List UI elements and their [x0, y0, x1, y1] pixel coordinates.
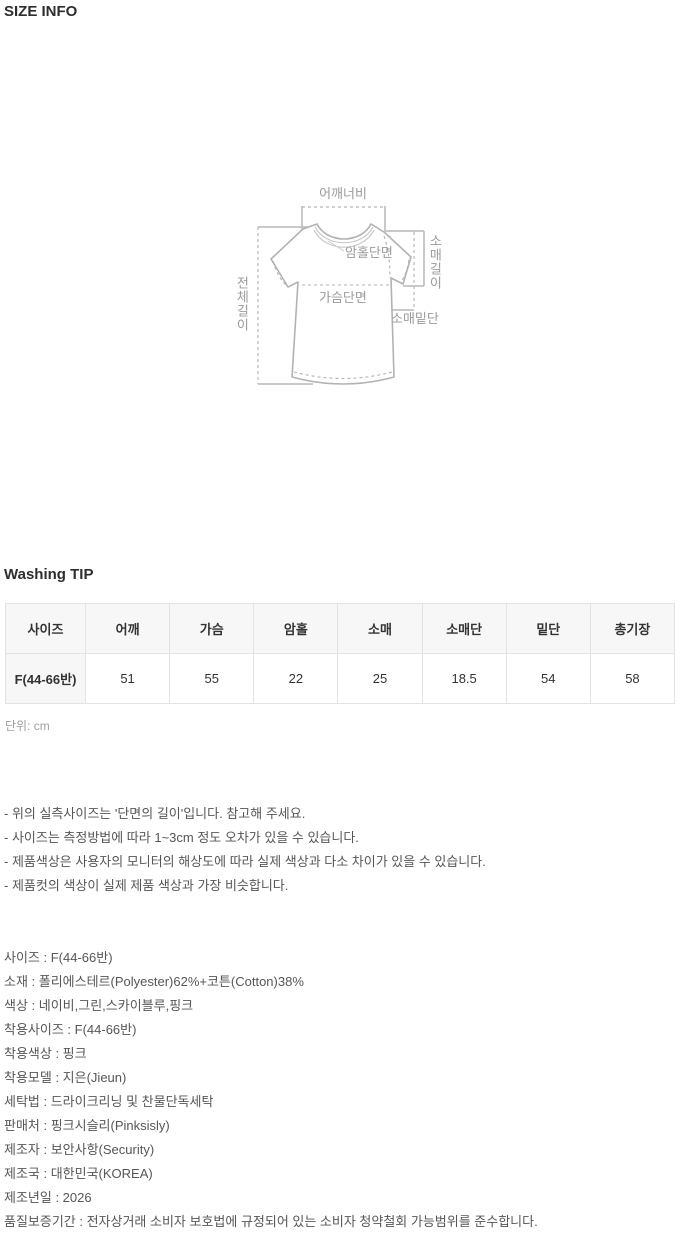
unit-label: 단위: cm [5, 717, 50, 734]
detail-line-washing: 세탁법 : 드라이크리닝 및 찬물단독세탁 [4, 1090, 538, 1114]
detail-line-warranty: 품질보증기간 : 전자상거래 소비자 보호법에 규정되어 있는 소비자 청약철회… [4, 1210, 538, 1234]
measurement-notes: - 위의 실측사이즈는 '단면의 길이'입니다. 참고해 주세요. - 사이즈는… [4, 802, 486, 898]
size-cell-shoulder: 51 [86, 654, 170, 704]
size-table-header-shoulder: 어깨 [86, 604, 170, 654]
note-line: - 제품색상은 사용자의 모니터의 해상도에 따라 실제 색상과 다소 차이가 … [4, 850, 486, 874]
sleeve-length-label: 소매길이 [427, 234, 441, 290]
detail-line-colors: 색상 : 네이비,그린,스카이블루,핑크 [4, 994, 538, 1018]
product-details: 사이즈 : F(44-66반) 소재 : 폴리에스테르(Polyester)62… [4, 946, 538, 1234]
size-cell-hem: 54 [506, 654, 590, 704]
detail-line-model-color: 착용색상 : 핑크 [4, 1042, 538, 1066]
detail-line-model-size: 착용사이즈 : F(44-66반) [4, 1018, 538, 1042]
note-line: - 위의 실측사이즈는 '단면의 길이'입니다. 참고해 주세요. [4, 802, 486, 826]
size-info-heading: SIZE INFO [4, 3, 77, 20]
detail-line-seller: 판매처 : 핑크시슬리(Pinksisly) [4, 1114, 538, 1138]
washing-tip-heading: Washing TIP [4, 566, 93, 583]
detail-line-manufacturer: 제조자 : 보안사항(Security) [4, 1138, 538, 1162]
size-table-header-armhole: 암홀 [254, 604, 338, 654]
total-length-label: 전체길이 [234, 276, 248, 332]
size-table-header-row: 사이즈 어깨 가슴 암홀 소매 소매단 밑단 총기장 [6, 604, 675, 654]
detail-line-model: 착용모델 : 지은(Jieun) [4, 1066, 538, 1090]
size-table-header-size: 사이즈 [6, 604, 86, 654]
chest-label: 가슴단면 [319, 291, 367, 305]
size-table-header-chest: 가슴 [170, 604, 254, 654]
shoulder-width-label: 어깨너비 [319, 187, 367, 201]
size-cell-chest: 55 [170, 654, 254, 704]
size-table: 사이즈 어깨 가슴 암홀 소매 소매단 밑단 총기장 F(44-66반) 51 … [5, 603, 675, 704]
detail-line-material: 소재 : 폴리에스테르(Polyester)62%+코튼(Cotton)38% [4, 970, 538, 994]
size-cell-armhole: 22 [254, 654, 338, 704]
size-table-header-total-length: 총기장 [590, 604, 674, 654]
size-cell-sleeve: 25 [338, 654, 422, 704]
sleeve-hem-label: 소매밑단 [391, 312, 439, 326]
size-cell-cuff: 18.5 [422, 654, 506, 704]
size-table-header-hem: 밑단 [506, 604, 590, 654]
detail-line-country: 제조국 : 대한민국(KOREA) [4, 1162, 538, 1186]
detail-line-size: 사이즈 : F(44-66반) [4, 946, 538, 970]
note-line: - 사이즈는 측정방법에 따라 1~3cm 정도 오차가 있을 수 있습니다. [4, 826, 486, 850]
size-table-header-sleeve: 소매 [338, 604, 422, 654]
size-table-header-cuff: 소매단 [422, 604, 506, 654]
note-line: - 제품컷의 색상이 실제 제품 색상과 가장 비슷합니다. [4, 874, 486, 898]
size-table-body: F(44-66반) 51 55 22 25 18.5 54 58 [6, 654, 675, 704]
size-cell-total-length: 58 [590, 654, 674, 704]
tshirt-measurement-diagram: 어깨너비 암홀단면 가슴단면 소매밑단 소매길이 전체길이 [220, 173, 470, 418]
size-cell-size: F(44-66반) [6, 654, 86, 704]
detail-line-year: 제조년일 : 2026 [4, 1186, 538, 1210]
armhole-label: 암홀단면 [345, 246, 393, 260]
size-table-row: F(44-66반) 51 55 22 25 18.5 54 58 [6, 654, 675, 704]
